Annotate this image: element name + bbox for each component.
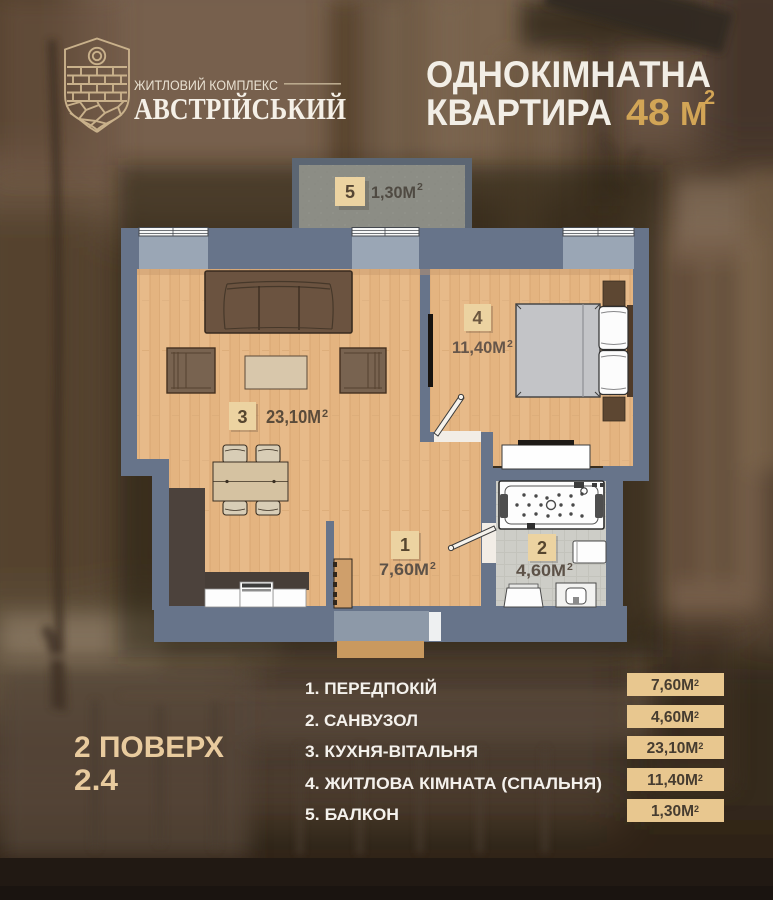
svg-text:11,40М: 11,40М xyxy=(452,339,506,357)
svg-text:1: 1 xyxy=(400,535,410,555)
svg-text:4: 4 xyxy=(472,308,482,328)
svg-text:7,60М: 7,60М xyxy=(379,561,429,579)
svg-text:2: 2 xyxy=(430,560,436,572)
svg-text:2: 2 xyxy=(507,338,513,350)
svg-text:2.4: 2.4 xyxy=(74,764,118,797)
svg-text:4. ЖИТЛОВА КІМНАТА (СПАЛЬНЯ): 4. ЖИТЛОВА КІМНАТА (СПАЛЬНЯ) xyxy=(305,775,602,793)
svg-text:2 ПОВЕРХ: 2 ПОВЕРХ xyxy=(74,731,224,764)
svg-text:1. ПЕРЕДПОКІЙ: 1. ПЕРЕДПОКІЙ xyxy=(305,679,437,698)
svg-text:3. КУХНЯ-ВІТАЛЬНЯ: 3. КУХНЯ-ВІТАЛЬНЯ xyxy=(305,743,478,761)
svg-text:5: 5 xyxy=(345,182,355,202)
svg-text:3: 3 xyxy=(237,407,247,427)
svg-text:2: 2 xyxy=(704,87,715,109)
svg-text:7,60М2: 7,60М2 xyxy=(651,677,699,694)
svg-text:ОДНОКІМНАТНА: ОДНОКІМНАТНА xyxy=(426,54,711,95)
svg-text:23,10М: 23,10М xyxy=(266,407,321,427)
svg-text:2: 2 xyxy=(417,181,423,193)
svg-text:48: 48 xyxy=(626,92,670,133)
svg-text:АВСТРІЙСЬКИЙ: АВСТРІЙСЬКИЙ xyxy=(134,91,346,126)
svg-text:11,40М2: 11,40М2 xyxy=(647,772,703,789)
svg-text:2: 2 xyxy=(322,408,328,420)
svg-text:2: 2 xyxy=(567,561,573,573)
svg-text:КВАРТИРА: КВАРТИРА xyxy=(426,92,612,133)
svg-text:1,30М: 1,30М xyxy=(371,184,416,202)
svg-text:2: 2 xyxy=(537,538,547,558)
svg-text:23,10М2: 23,10М2 xyxy=(647,740,704,757)
svg-text:4,60М2: 4,60М2 xyxy=(651,709,699,726)
svg-text:5. БАЛКОН: 5. БАЛКОН xyxy=(305,806,399,824)
svg-text:4,60М: 4,60М xyxy=(516,562,566,580)
svg-text:1,30М2: 1,30М2 xyxy=(651,803,699,820)
svg-text:2. САНВУЗОЛ: 2. САНВУЗОЛ xyxy=(305,712,418,730)
